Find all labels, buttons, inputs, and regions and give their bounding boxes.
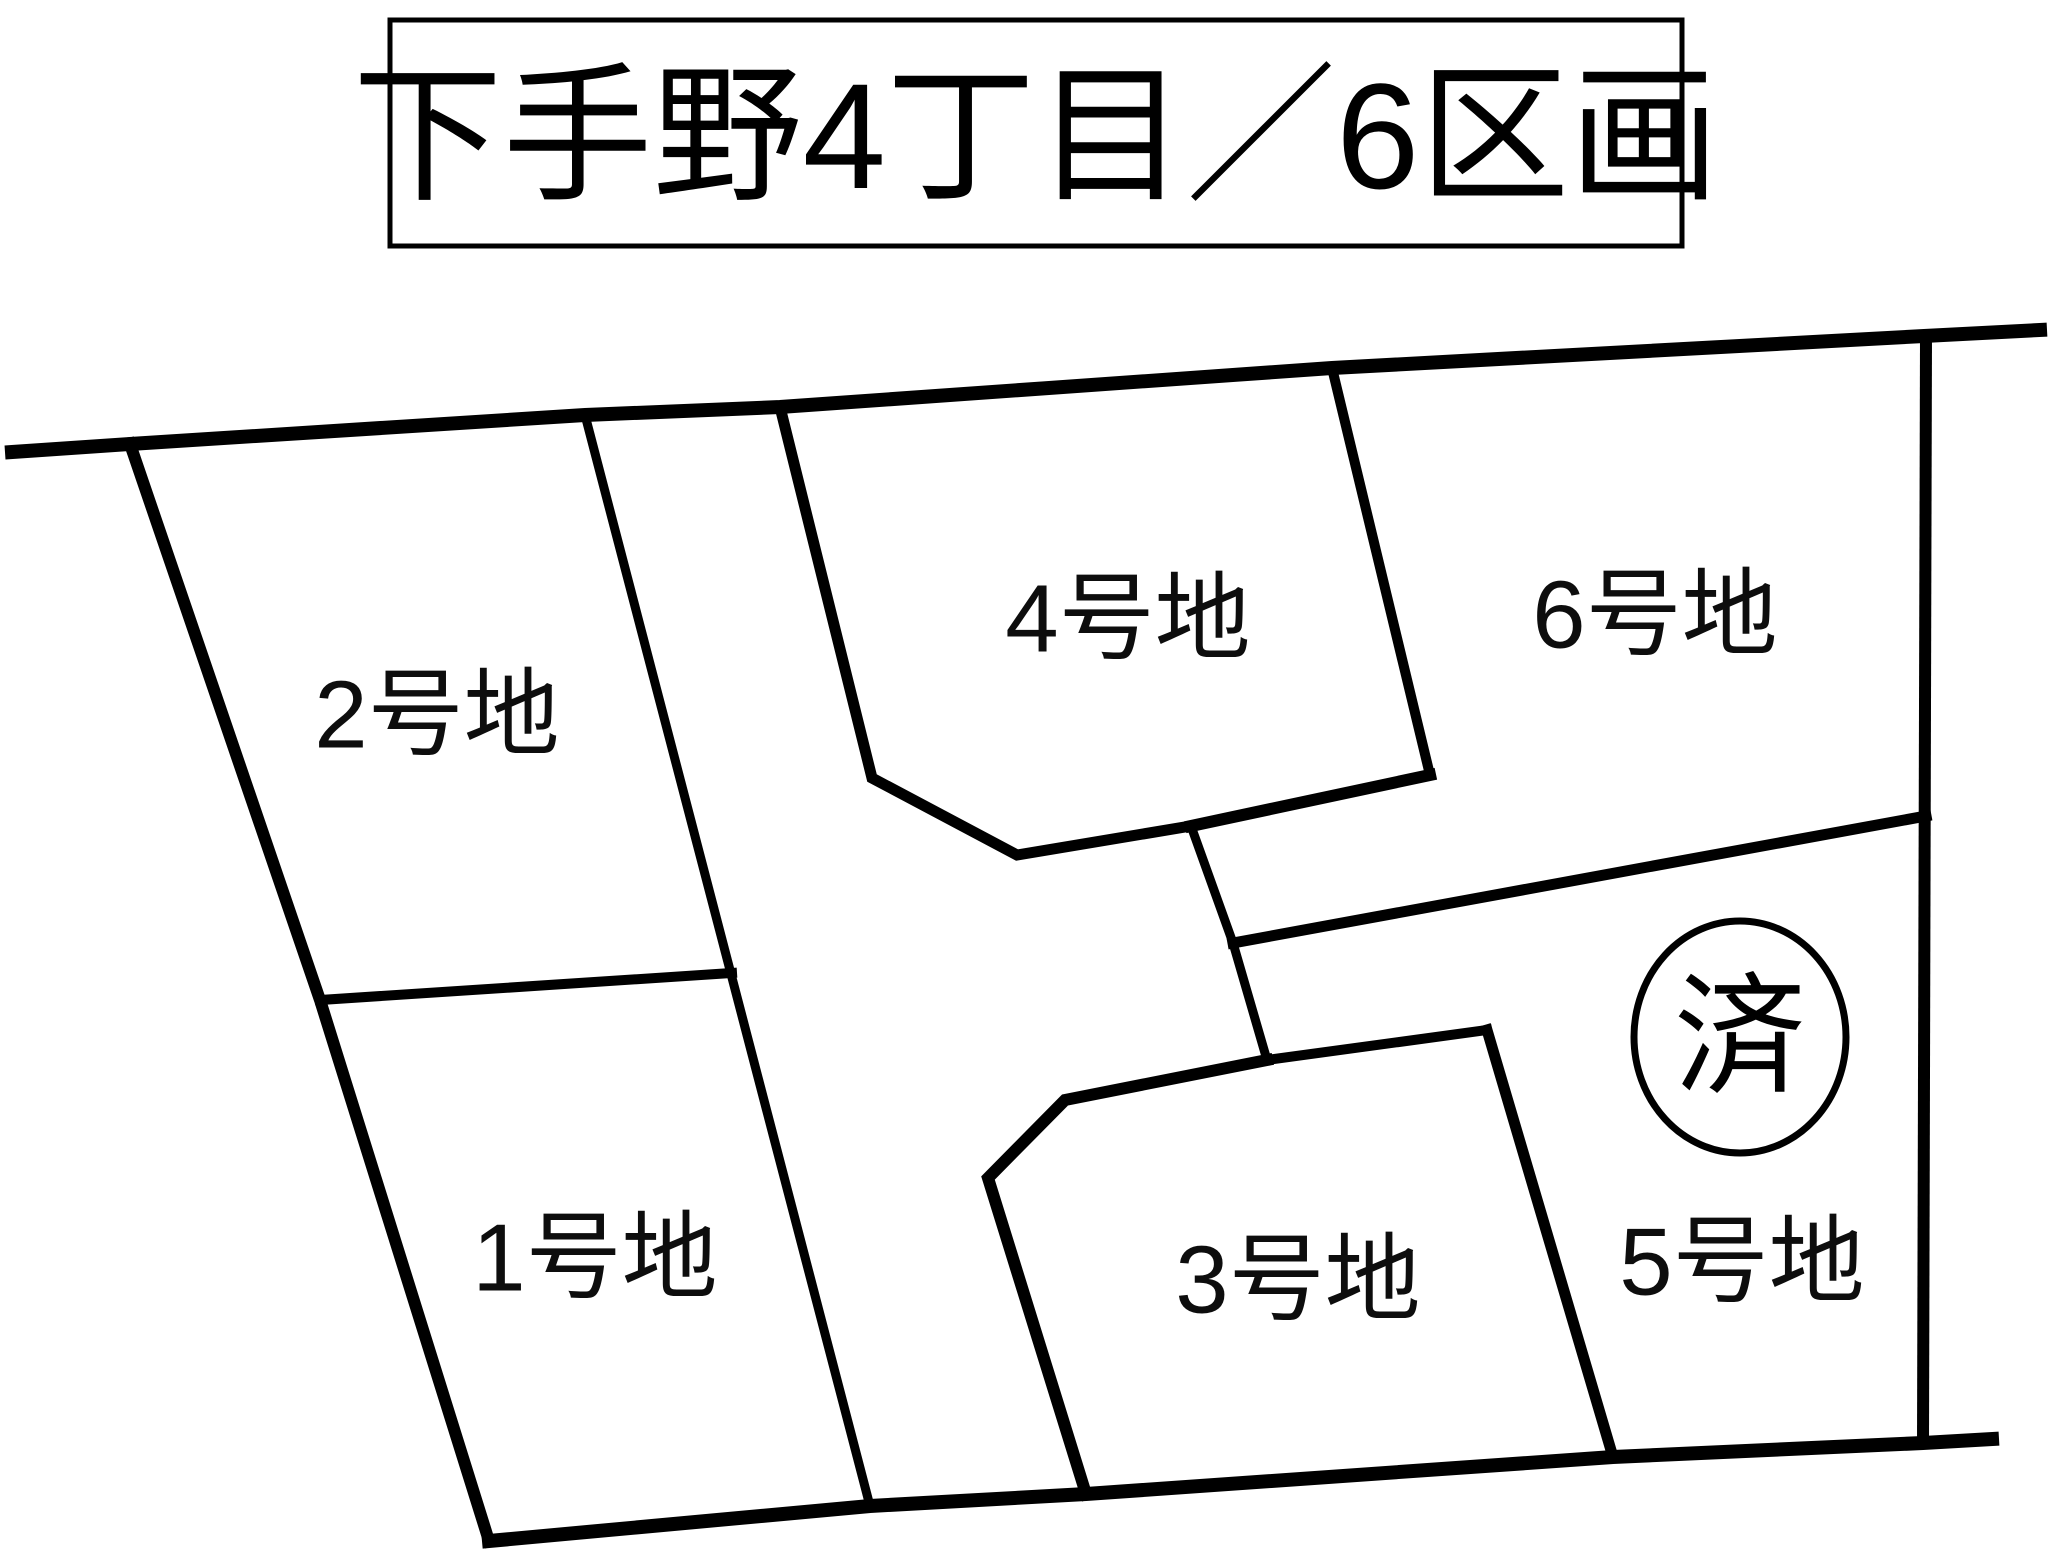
boundary-lines: [12, 330, 2040, 1541]
lot-1-label: 1号地: [472, 1205, 717, 1312]
lot-labels: 1号地2号地3号地4号地5号地6号地: [314, 562, 1864, 1334]
sold-mark-label: 済: [1674, 964, 1806, 1111]
right-outer-edge: [1923, 336, 1926, 1443]
lot3-northeast-edge: [1267, 1030, 1487, 1060]
lot-3-label: 3号地: [1175, 1227, 1420, 1334]
lot-2-label: 2号地: [314, 662, 559, 769]
divider-lot4-lot6: [1332, 368, 1430, 775]
title-block: 下手野4丁目／6区画: [353, 20, 1720, 246]
lot-4-label: 4号地: [1005, 566, 1250, 673]
divider-lot3-lot5: [1487, 1030, 1613, 1457]
divider-lot1-lot2: [320, 973, 732, 1000]
lot-map-page: 1号地2号地3号地4号地5号地6号地 済 下手野4丁目／6区画: [0, 0, 2048, 1560]
page-title: 下手野4丁目／6区画: [353, 52, 1720, 220]
lot-6-label: 6号地: [1532, 562, 1777, 669]
bottom-road-boundary: [489, 1439, 1992, 1541]
lot-5-label: 5号地: [1619, 1209, 1864, 1316]
sold-mark-group: 済: [1634, 921, 1846, 1153]
lot-map-svg: 1号地2号地3号地4号地5号地6号地 済 下手野4丁目／6区画: [0, 0, 2048, 1560]
lot6-southwest-edge: [1191, 775, 1430, 826]
divider-lot5-lot6: [1233, 816, 1926, 943]
top-road-boundary: [12, 330, 2040, 452]
